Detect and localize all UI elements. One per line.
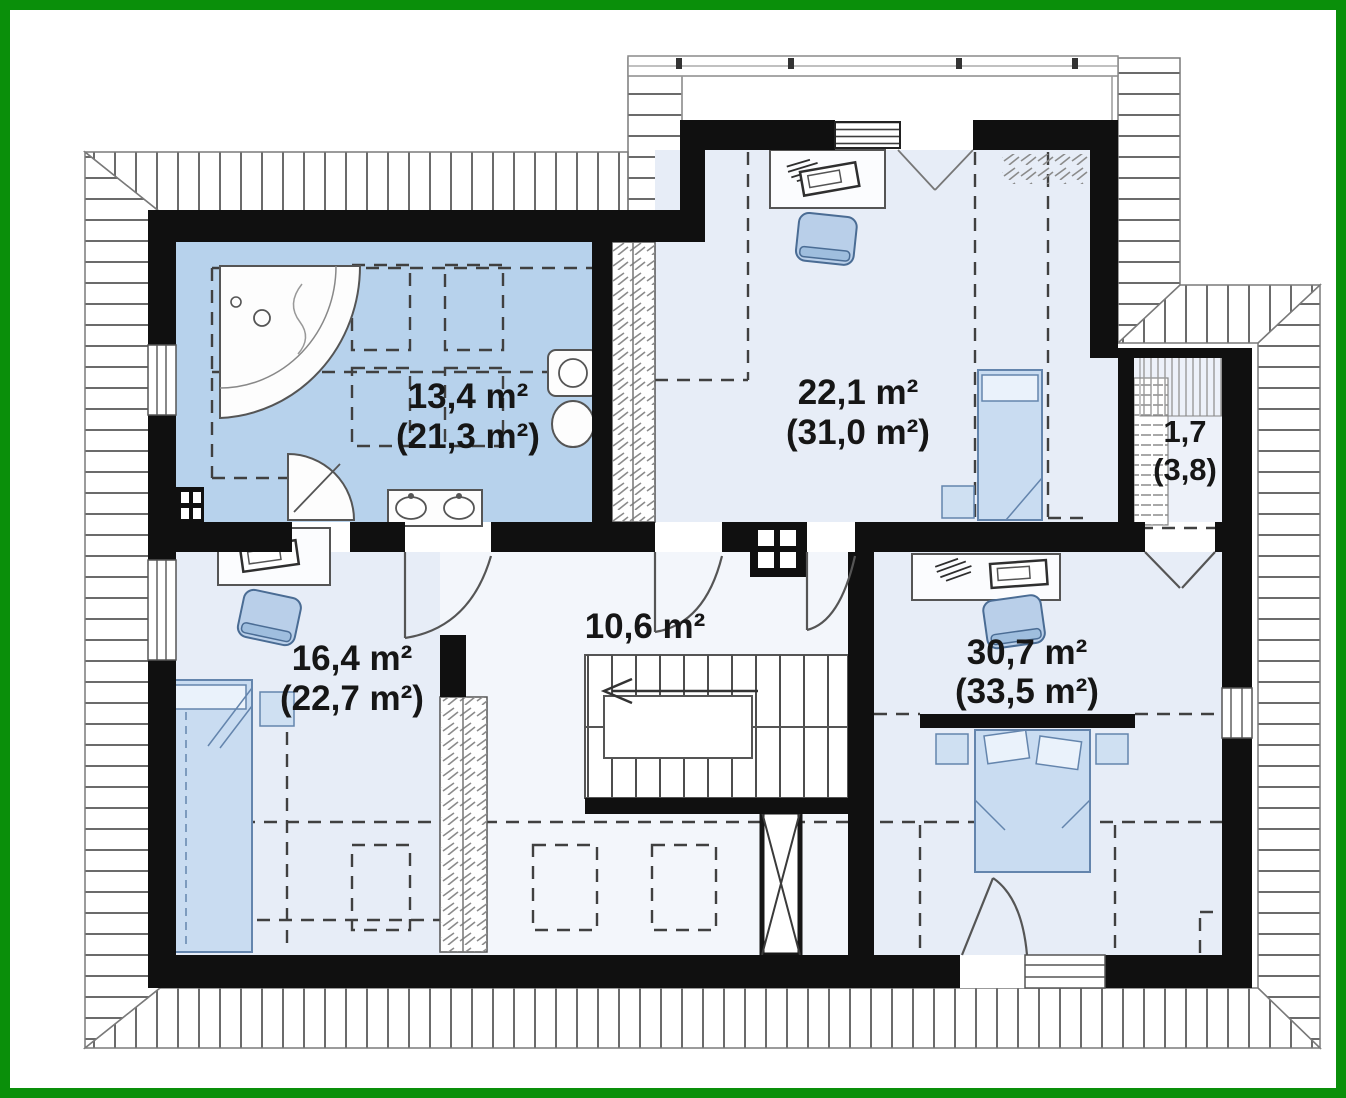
window-right	[1222, 688, 1252, 738]
double-washbasin-icon	[388, 490, 482, 526]
floor-plan-page: 13,4 m² (21,3 m²) 22,1 m² (31,0 m²) 1,7 …	[0, 0, 1346, 1098]
floor-plan-drawing: 13,4 m² (21,3 m²) 22,1 m² (31,0 m²) 1,7 …	[0, 0, 1346, 1098]
ventilation-grid	[176, 487, 204, 525]
label-closet-area: 1,7	[1163, 414, 1206, 449]
monitor-icon	[990, 560, 1048, 588]
closet-roof-window	[1140, 356, 1222, 416]
wardrobe-left-icon	[440, 697, 487, 952]
label-bathroom-area: 13,4 m²	[408, 377, 529, 416]
window-left-bathroom	[148, 345, 176, 415]
label-closet-total: (3,8)	[1153, 452, 1217, 487]
roof-band-bottom	[85, 988, 1320, 1048]
window-bottom	[1025, 955, 1105, 988]
label-bedroom-left-area: 16,4 m²	[292, 639, 413, 678]
label-bedroom-right-total: (33,5 m²)	[955, 672, 1099, 711]
label-bedroom-top-total: (31,0 m²)	[786, 413, 930, 452]
bed-headboard-wall	[920, 714, 1135, 728]
chimney-shaft	[762, 812, 800, 955]
roof-band-right	[1258, 285, 1320, 1048]
double-bed-icon	[975, 730, 1090, 872]
label-bathroom-total: (21,3 m²)	[396, 417, 540, 456]
nightstand-icon	[942, 486, 974, 518]
nightstand-icon	[936, 734, 968, 764]
door-gap-bottom	[960, 955, 1025, 988]
roof-band-top	[85, 152, 628, 212]
chimney-block	[750, 522, 807, 577]
window-top	[835, 122, 900, 148]
label-hall-area: 10,6 m²	[585, 607, 706, 646]
window-left-bedroom	[148, 560, 176, 660]
label-bedroom-top-area: 22,1 m²	[798, 373, 919, 412]
wardrobe-top-icon	[612, 242, 655, 522]
curtain-scribble	[1002, 154, 1088, 184]
single-bed-icon	[978, 370, 1042, 520]
staircase	[585, 655, 848, 798]
nightstand-icon	[1096, 734, 1128, 764]
label-bedroom-right-area: 30,7 m²	[967, 633, 1088, 672]
office-chair-icon	[795, 212, 858, 266]
label-bedroom-left-total: (22,7 m²)	[280, 679, 424, 718]
stair-landing-rail	[604, 696, 752, 758]
